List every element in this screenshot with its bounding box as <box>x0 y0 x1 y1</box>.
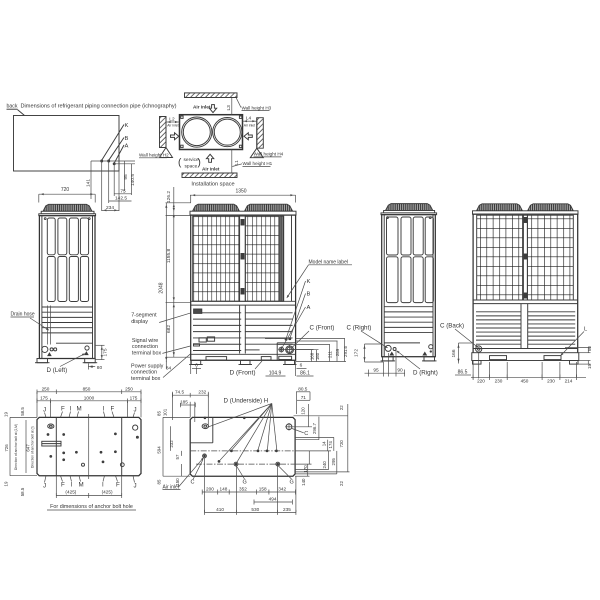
svg-text:Direction of anchor bolt at (J: Direction of anchor bolt at (J,M) <box>14 424 18 470</box>
svg-text:): ) <box>198 158 201 169</box>
svg-text:M: M <box>77 406 82 413</box>
svg-text:1000: 1000 <box>84 395 95 400</box>
svg-text:214: 214 <box>565 379 573 384</box>
svg-text:J: J <box>43 483 46 490</box>
svg-text:342: 342 <box>278 487 286 492</box>
svg-text:175: 175 <box>102 348 108 356</box>
svg-text:220: 220 <box>477 379 485 384</box>
svg-text:720: 720 <box>339 440 344 448</box>
svg-text:Dimensions of refrigerant pipi: Dimensions of refrigerant piping connect… <box>21 104 177 110</box>
svg-text:F: F <box>116 482 120 489</box>
svg-text:Installation space: Installation space <box>191 182 234 188</box>
svg-text:D (Right): D (Right) <box>413 370 438 377</box>
svg-text:22: 22 <box>339 405 344 410</box>
svg-text:200: 200 <box>206 487 214 492</box>
svg-text:connection: connection <box>131 370 157 376</box>
svg-text:F: F <box>111 406 115 413</box>
svg-text:connection: connection <box>132 344 158 350</box>
svg-text:I: I <box>71 482 73 489</box>
svg-text:1350: 1350 <box>235 189 246 195</box>
svg-text:(425): (425) <box>102 490 113 495</box>
svg-text:7-segment: 7-segment <box>131 313 157 319</box>
svg-text:682: 682 <box>166 325 172 333</box>
svg-text:(425): (425) <box>65 490 76 495</box>
svg-text:126.2: 126.2 <box>166 191 172 203</box>
svg-text:14: 14 <box>321 441 326 446</box>
svg-text:58.5: 58.5 <box>20 407 25 416</box>
svg-text:Direction of anchor bolt at (I: Direction of anchor bolt at (I) <box>31 426 35 468</box>
svg-text:230: 230 <box>547 379 555 384</box>
svg-text:J: J <box>134 407 137 414</box>
svg-text:80: 80 <box>97 365 103 371</box>
svg-text:158: 158 <box>259 487 267 492</box>
svg-text:Drain hose: Drain hose <box>11 312 35 318</box>
svg-text:352: 352 <box>239 487 247 492</box>
svg-text:74.5: 74.5 <box>175 389 185 394</box>
svg-text:C: C <box>304 431 308 437</box>
svg-text:494: 494 <box>269 497 277 502</box>
svg-text:291.6: 291.6 <box>343 345 348 357</box>
svg-text:Air inlet: Air inlet <box>193 105 211 110</box>
svg-text:C (Front): C (Front) <box>310 325 335 332</box>
svg-text:95: 95 <box>123 174 129 180</box>
svg-text:A: A <box>307 305 311 311</box>
svg-text:L3: L3 <box>226 105 232 111</box>
svg-text:J: J <box>43 407 46 414</box>
svg-text:230: 230 <box>495 379 503 384</box>
svg-text:86.1: 86.1 <box>300 371 310 377</box>
svg-text:B: B <box>125 136 129 142</box>
svg-text:148: 148 <box>219 487 227 492</box>
svg-text:J: J <box>134 483 137 490</box>
svg-text:19: 19 <box>4 481 9 486</box>
svg-text:140.5: 140.5 <box>130 174 136 186</box>
svg-text:175: 175 <box>130 395 138 400</box>
svg-text:G: G <box>243 480 247 486</box>
svg-text:104.9: 104.9 <box>269 371 282 377</box>
svg-text:Signal wire: Signal wire <box>132 338 158 344</box>
svg-text:90: 90 <box>397 367 403 373</box>
svg-text:250: 250 <box>125 386 133 391</box>
svg-text:For dimensions of anchor bolt: For dimensions of anchor bolt hole <box>50 504 133 510</box>
svg-text:F: F <box>61 406 65 413</box>
svg-text:142.5: 142.5 <box>115 196 127 202</box>
svg-text:15: 15 <box>587 364 592 369</box>
svg-text:K: K <box>307 279 311 285</box>
svg-text:A: A <box>125 144 129 150</box>
svg-text:450: 450 <box>521 379 529 384</box>
svg-text:M: M <box>79 482 84 489</box>
svg-text:Wall height H4: Wall height H4 <box>254 152 284 157</box>
svg-text:185: 185 <box>180 399 188 404</box>
svg-text:I: I <box>103 406 105 413</box>
svg-text:C: C <box>191 480 195 486</box>
svg-text:175: 175 <box>40 395 48 400</box>
svg-text:530: 530 <box>251 507 259 512</box>
svg-text:160: 160 <box>315 352 320 360</box>
svg-text:240: 240 <box>322 461 327 469</box>
svg-text:22: 22 <box>339 481 344 486</box>
svg-text:170: 170 <box>303 465 308 473</box>
svg-text:I: I <box>102 482 104 489</box>
svg-text:Wall height H1: Wall height H1 <box>243 161 273 166</box>
svg-text:141: 141 <box>86 179 92 187</box>
svg-text:85: 85 <box>156 411 161 416</box>
svg-text:6: 6 <box>300 362 303 368</box>
svg-text:84: 84 <box>166 365 172 371</box>
svg-text:Air inlet: Air inlet <box>167 123 178 127</box>
svg-text:space: space <box>185 165 198 170</box>
svg-text:720: 720 <box>61 187 70 193</box>
svg-text:232: 232 <box>198 389 206 394</box>
svg-text:back: back <box>7 104 18 110</box>
svg-text:Wall height H3: Wall height H3 <box>242 105 272 110</box>
svg-text:86.5: 86.5 <box>458 370 468 376</box>
svg-text:232: 232 <box>169 440 174 448</box>
svg-text:75: 75 <box>120 188 126 194</box>
svg-text:K: K <box>125 123 129 129</box>
svg-text:71: 71 <box>301 395 307 400</box>
svg-text:101: 101 <box>163 408 168 416</box>
svg-text:terminal box: terminal box <box>131 376 161 382</box>
svg-text:57: 57 <box>175 454 180 459</box>
svg-text:Air inlet: Air inlet <box>202 167 220 172</box>
svg-text:410: 410 <box>216 507 224 512</box>
svg-text:166: 166 <box>451 349 457 357</box>
svg-text:F: F <box>61 482 65 489</box>
svg-text:259: 259 <box>335 348 340 356</box>
svg-text:60: 60 <box>587 346 592 351</box>
svg-text:850: 850 <box>83 386 91 391</box>
svg-text:168: 168 <box>310 352 315 360</box>
svg-text:594: 594 <box>156 446 161 454</box>
svg-text:174: 174 <box>328 441 333 449</box>
svg-text:C (Right): C (Right) <box>347 325 372 332</box>
svg-text:296.7: 296.7 <box>312 422 317 434</box>
svg-text:C (Back): C (Back) <box>440 323 464 330</box>
svg-text:D (Front): D (Front) <box>230 370 256 377</box>
svg-text:140: 140 <box>301 478 306 486</box>
svg-text:1155.8: 1155.8 <box>166 249 172 264</box>
svg-text:B: B <box>307 292 311 298</box>
svg-text:19: 19 <box>4 412 9 417</box>
svg-text:120: 120 <box>301 407 306 415</box>
svg-text:85: 85 <box>156 479 161 484</box>
svg-text:58.5: 58.5 <box>20 487 25 496</box>
svg-text:211: 211 <box>328 350 333 358</box>
svg-text:I: I <box>70 406 72 413</box>
svg-text:2048: 2048 <box>159 282 165 293</box>
svg-text:D (Underside) H: D (Underside) H <box>224 398 269 405</box>
svg-text:terminal box: terminal box <box>132 350 162 356</box>
svg-text:Air inlet: Air inlet <box>244 123 255 127</box>
svg-text:80.5: 80.5 <box>298 386 308 391</box>
svg-text:D (Left): D (Left) <box>47 367 68 374</box>
svg-text:172: 172 <box>354 349 360 357</box>
svg-text:235: 235 <box>283 507 291 512</box>
svg-text:Power supply: Power supply <box>131 363 164 369</box>
svg-text:95: 95 <box>373 367 379 373</box>
svg-text:Wall height H2: Wall height H2 <box>139 153 169 158</box>
svg-text:G: G <box>290 479 294 485</box>
svg-text:726: 726 <box>4 444 9 452</box>
svg-text:250: 250 <box>42 386 50 391</box>
svg-text:295: 295 <box>331 458 336 466</box>
svg-text:display: display <box>131 319 148 325</box>
